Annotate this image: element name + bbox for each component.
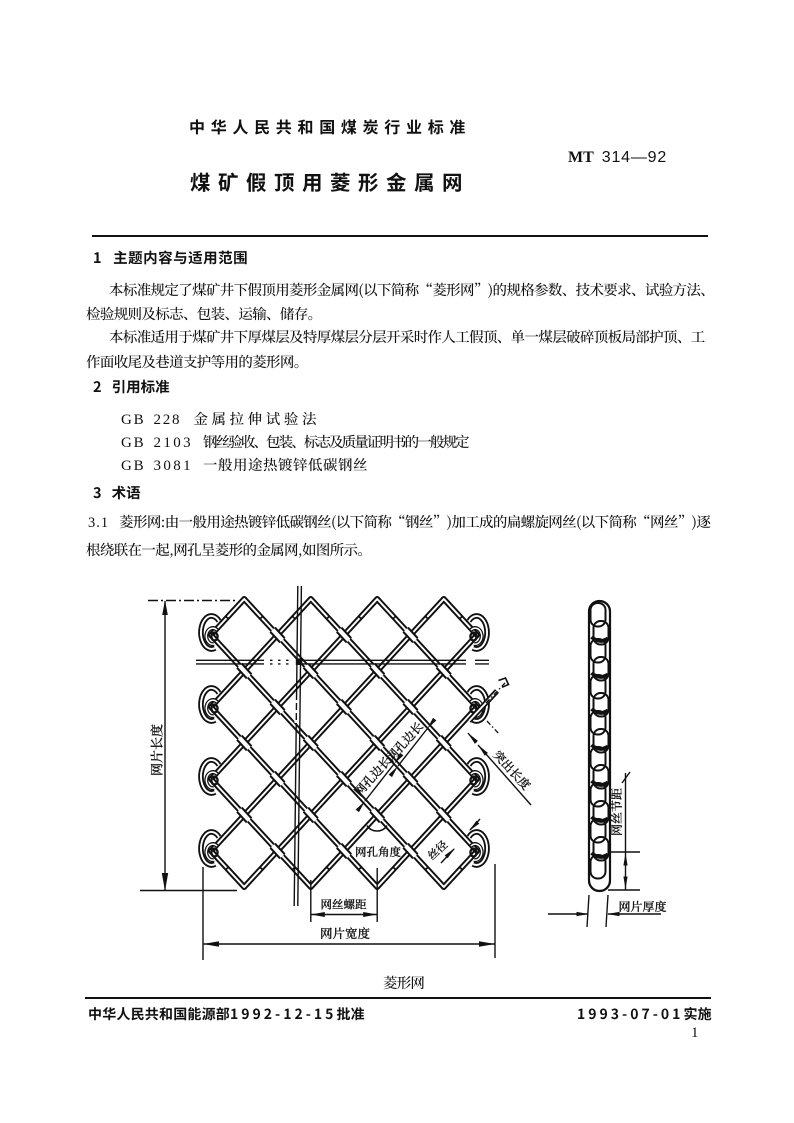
svg-text:网片长度: 网片长度	[147, 724, 166, 776]
svg-text:突出长度: 突出长度	[489, 747, 534, 794]
svg-text:网丝节距: 网丝节距	[608, 788, 625, 836]
svg-text:丝径: 丝径	[424, 837, 451, 864]
svg-text:网片宽度: 网片宽度	[320, 924, 371, 942]
svg-text:网丝螺距: 网丝螺距	[321, 897, 367, 913]
svg-text:网孔角度: 网孔角度	[355, 844, 401, 860]
svg-text:网片厚度: 网片厚度	[618, 898, 666, 915]
